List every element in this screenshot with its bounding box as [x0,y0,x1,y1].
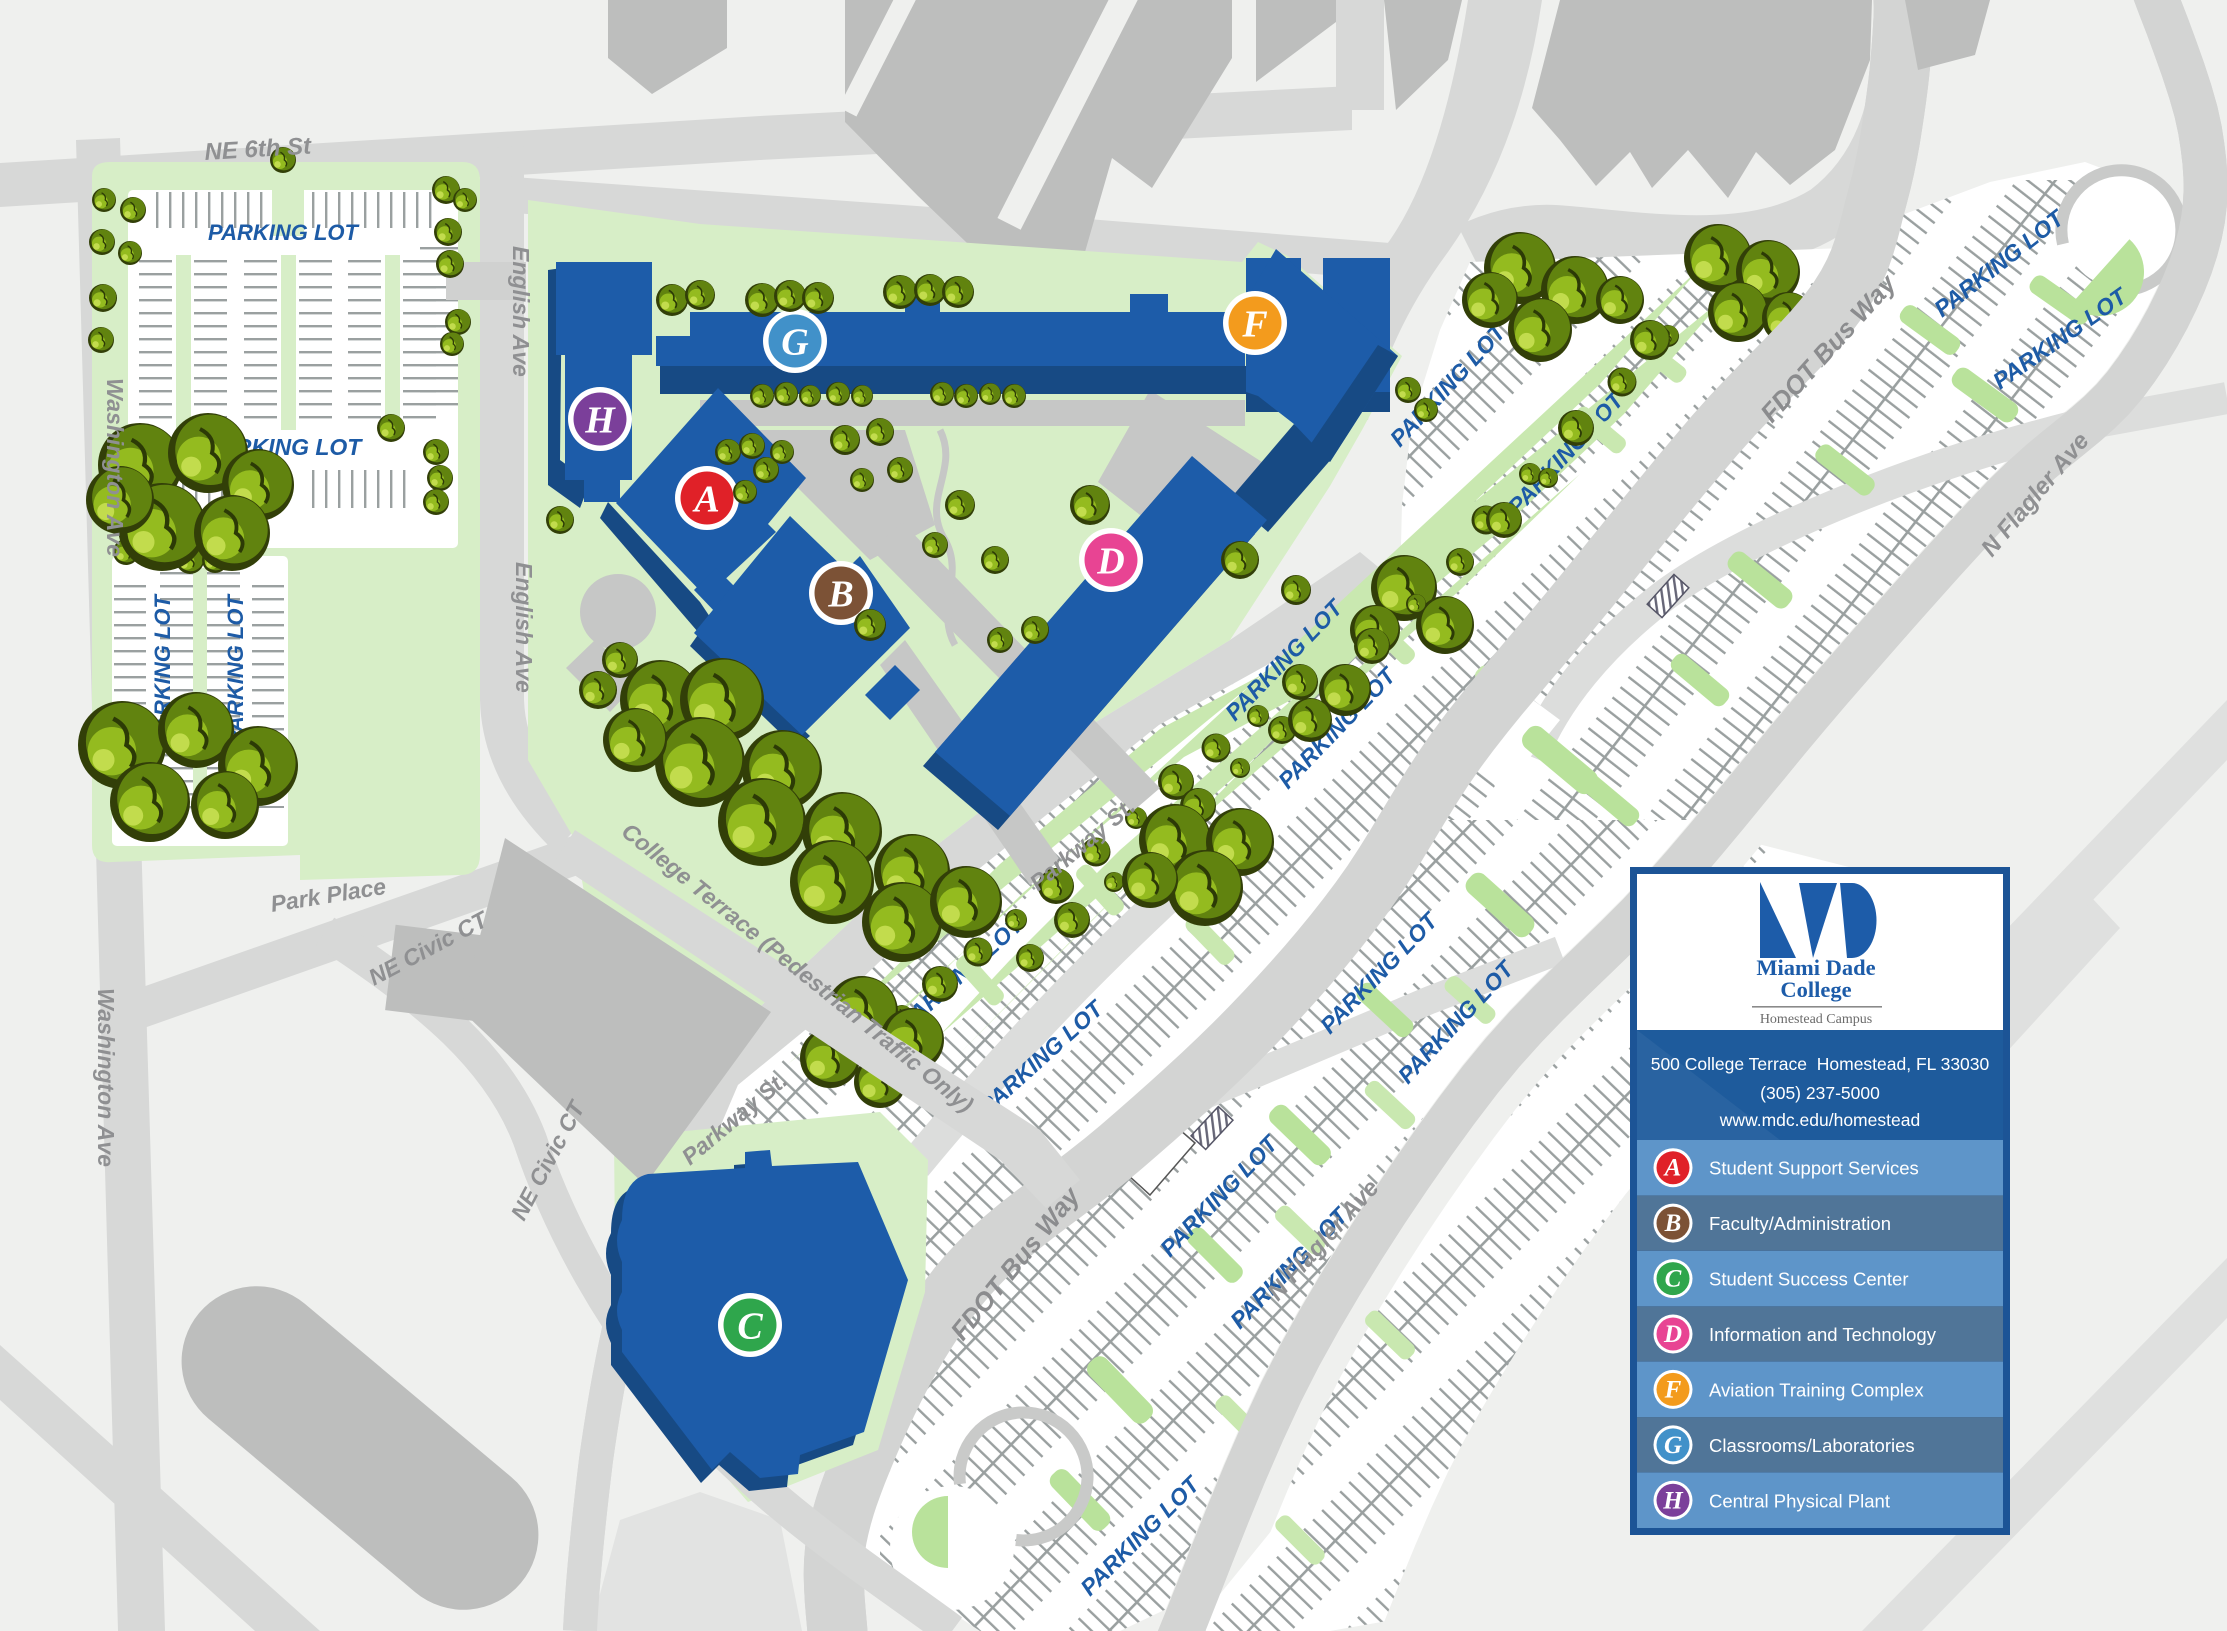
svg-text:D: D [1096,541,1124,583]
svg-text:G: G [781,322,809,364]
svg-text:Washington Ave: Washington Ave [93,988,119,1167]
svg-text:PARKING LOT: PARKING LOT [208,220,359,245]
svg-text:F: F [1664,1376,1682,1403]
svg-text:C: C [1665,1266,1682,1293]
svg-text:Washington Ave: Washington Ave [102,378,128,557]
svg-text:English Ave: English Ave [508,246,534,377]
svg-text:Central Physical Plant: Central Physical Plant [1709,1490,1890,1511]
svg-text:A: A [692,479,719,521]
svg-text:H: H [584,400,616,442]
svg-text:English Ave: English Ave [511,562,537,693]
svg-text:Student Success Center: Student Success Center [1709,1269,1909,1290]
svg-text:F: F [1241,304,1267,346]
svg-text:Information and Technology: Information and Technology [1709,1324,1937,1345]
svg-text:500 College Terrace Homestead: 500 College Terrace Homestead, FL 33030 [1651,1054,1990,1074]
svg-text:G: G [1664,1432,1682,1459]
svg-text:H: H [1662,1487,1684,1514]
svg-text:A: A [1663,1155,1682,1182]
svg-text:Classrooms/Laboratories: Classrooms/Laboratories [1709,1435,1915,1456]
svg-text:B: B [827,574,853,616]
svg-text:www.mdc.edu/homestead: www.mdc.edu/homestead [1719,1110,1920,1130]
svg-text:C: C [737,1306,763,1348]
svg-text:Aviation Training Complex: Aviation Training Complex [1709,1379,1924,1400]
svg-text:Faculty/Administration: Faculty/Administration [1709,1213,1891,1234]
svg-text:Student Support Services: Student Support Services [1709,1158,1919,1179]
svg-text:(305) 237-5000: (305) 237-5000 [1760,1083,1880,1103]
svg-text:College: College [1780,977,1851,1002]
svg-text:D: D [1663,1321,1682,1348]
svg-text:Homestead Campus: Homestead Campus [1760,1012,1872,1027]
svg-text:B: B [1664,1210,1682,1237]
